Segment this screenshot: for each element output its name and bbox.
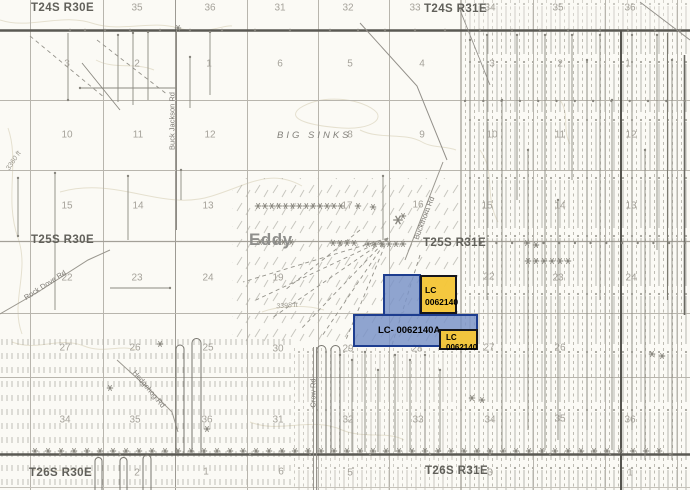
parcel-blue-north[interactable] xyxy=(383,274,421,316)
parcel-label: LC- 0062140A xyxy=(378,325,440,337)
map-canvas[interactable]: T24S R30ET24S R31ET25S R30ET25S R31ET26S… xyxy=(0,0,690,490)
parcel-label: 0062140 xyxy=(425,296,458,308)
parcel-yellow-south[interactable]: LC0062140 xyxy=(439,329,478,350)
parcel-yellow-north[interactable]: LC0062140 xyxy=(420,275,457,314)
parcel-label: 0062140 xyxy=(446,343,477,353)
lease-parcels: LC- 0062140ALC0062140LC0062140 xyxy=(0,0,690,490)
parcel-label: LC xyxy=(446,333,457,343)
parcel-label: LC xyxy=(425,284,436,296)
